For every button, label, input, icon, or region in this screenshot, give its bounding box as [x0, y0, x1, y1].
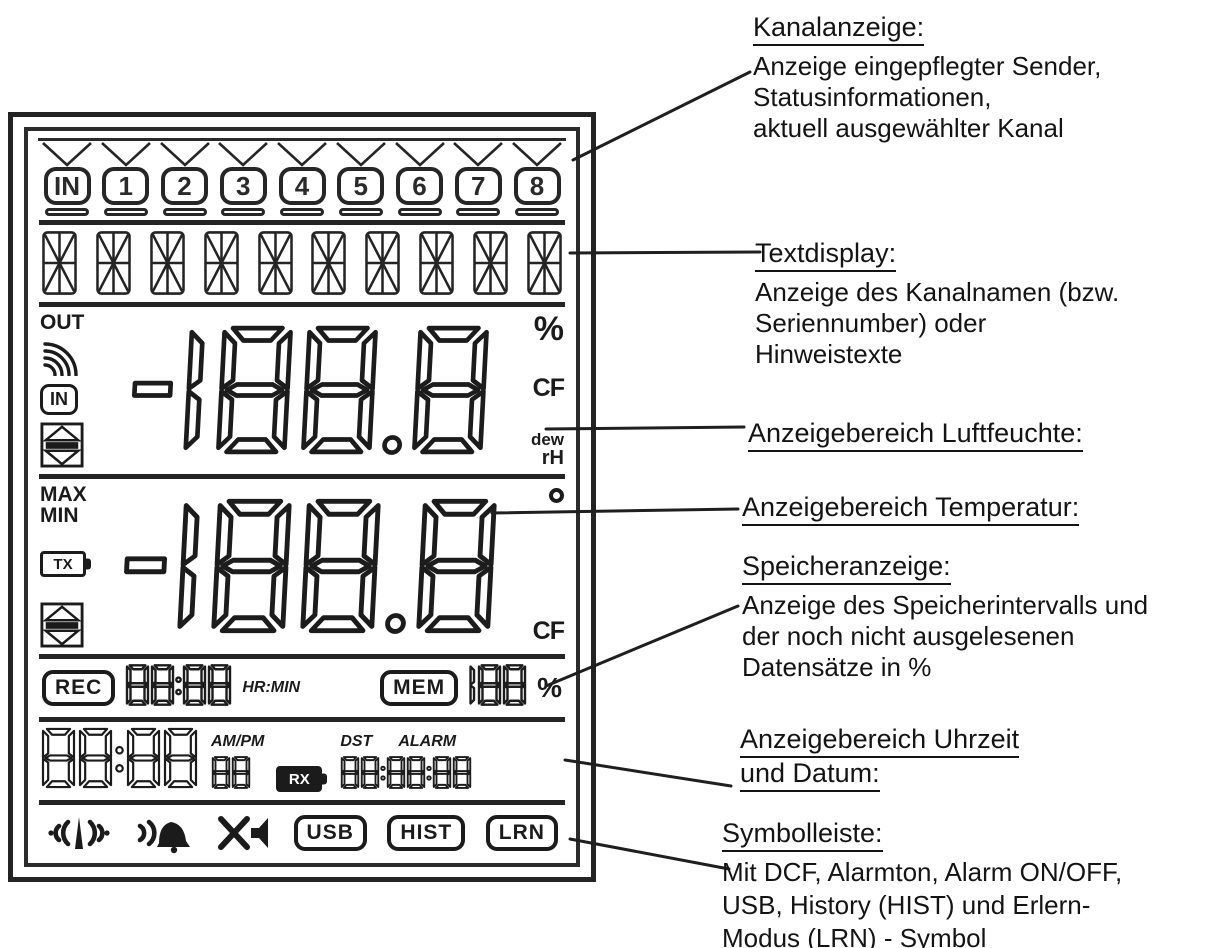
tx-battery-icon: TX [40, 551, 86, 577]
channel-box: 6 [396, 167, 443, 205]
channel-cell-IN: IN [40, 141, 94, 216]
channel-arrow-icon [158, 141, 212, 167]
fourteen-seg-char [310, 230, 347, 296]
channel-underline [45, 208, 89, 216]
channel-arrow-icon [334, 141, 388, 167]
annotation-line: Anzeige des Speicherintervalls und [742, 590, 1148, 621]
lcd-panel-frame: IN 1 2 3 4 5 [8, 112, 596, 882]
fourteen-seg-char [41, 230, 78, 296]
text-display [38, 228, 566, 298]
humidity-area: OUT IN [38, 310, 566, 470]
lcd-panel-inner: IN 1 2 3 4 5 [24, 127, 580, 867]
alarm-muted-icon [215, 812, 273, 854]
annotation-line: Anzeige eingepflegter Sender, [753, 51, 1101, 82]
seg-char [360, 756, 380, 789]
rh-label: rH [542, 448, 564, 468]
divider [39, 302, 565, 307]
leader-kanalanzeige [573, 72, 750, 160]
ampm-group: AM/PM [211, 734, 264, 794]
divider [39, 717, 565, 722]
mem-chip: MEM [380, 670, 458, 706]
channel-cell-1: 1 [99, 141, 153, 216]
temperature-area: MAX MIN TX CF [38, 482, 566, 650]
channel-underline [221, 208, 265, 216]
humidity-left-icons: OUT IN [40, 312, 112, 468]
annotation-temperatur: Anzeigebereich Temperatur: [742, 492, 1079, 531]
seg-char [231, 756, 251, 789]
channel-arrow-icon [451, 141, 505, 167]
max-label: MAX [40, 484, 87, 505]
degree-icon [549, 488, 564, 503]
lcd-display-diagram: IN 1 2 3 4 5 [0, 0, 1206, 948]
divider [39, 220, 565, 225]
divider [39, 800, 565, 805]
date-digits [340, 756, 472, 794]
clock-row: AM/PM RX DST ALARM [38, 725, 566, 796]
annotation-uhrzeit-datum: Anzeigebereich Uhrzeit und Datum: [740, 724, 1019, 792]
seg-char [411, 497, 501, 635]
annotation-speicheranzeige: Speicheranzeige: Anzeige des Speicherint… [742, 551, 1148, 683]
seg-char [502, 664, 527, 706]
temperature-right-icons: CF [508, 484, 564, 648]
annotation-line: Mit DCF, Alarmton, Alarm ON/OFF, [722, 857, 1122, 888]
fourteen-seg-char [149, 230, 186, 296]
hist-chip: HIST [387, 815, 465, 851]
seg-char [127, 324, 179, 456]
seg-char [295, 497, 385, 635]
seg-char [297, 324, 383, 456]
channel-underline [104, 208, 148, 216]
annotation-line: der noch nicht ausgelesenen [742, 621, 1148, 652]
seg-char [125, 664, 150, 706]
annotation-kanalanzeige: Kanalanzeige: Anzeige eingepflegter Send… [753, 12, 1101, 144]
seconds-digits [211, 756, 251, 794]
dew-label: dew [531, 431, 564, 448]
in-chip: IN [40, 384, 78, 415]
seg-char [211, 756, 231, 789]
temperature-digits [108, 484, 513, 648]
dcf-signal-icon [46, 813, 112, 853]
alarm-tone-icon [133, 812, 195, 854]
annotation-line: Anzeige des Kanalnamen (bzw. [755, 277, 1119, 308]
seg-char [452, 756, 472, 789]
symbol-bar: USB HIST LRN [38, 808, 566, 856]
memory-percent-digits [468, 664, 527, 711]
channel-box: 2 [161, 167, 208, 205]
seg-char [150, 664, 175, 706]
annotation-title: Kanalanzeige: [753, 12, 924, 46]
divider [39, 474, 565, 479]
annotation-title: Symbolleiste: [722, 818, 883, 852]
signal-waves-icon [40, 340, 78, 376]
seg-char [207, 664, 232, 706]
annotation-title-line2: und Datum: [740, 758, 880, 792]
fourteen-seg-char [418, 230, 455, 296]
seg-char [406, 756, 426, 789]
seg-char [114, 727, 125, 789]
cf-label: CF [533, 376, 564, 401]
channel-box: 8 [514, 167, 561, 205]
lrn-chip: LRN [486, 815, 558, 851]
cf-label: CF [533, 619, 564, 644]
channel-cell-3: 3 [216, 141, 270, 216]
channel-row: IN 1 2 3 4 5 [38, 138, 566, 216]
humidity-right-icons: % CF dew rH [508, 312, 564, 468]
seg-char [175, 664, 182, 706]
seg-char [178, 324, 213, 456]
channel-cell-4: 4 [275, 141, 329, 216]
channel-arrow-icon [40, 141, 94, 167]
channel-cell-6: 6 [393, 141, 447, 216]
rx-battery-icon: RX [276, 766, 322, 792]
seg-char [182, 664, 207, 706]
annotation-title: Anzeigebereich Uhrzeit [740, 724, 1019, 758]
annotation-line: USB, History (HIST) und Erlern- [722, 888, 1122, 922]
channel-cell-5: 5 [334, 141, 388, 216]
annotation-line: Statusinformationen, [753, 82, 1101, 113]
channel-underline [280, 208, 324, 216]
out-label: OUT [40, 312, 84, 333]
seg-char [118, 497, 172, 635]
channel-underline [515, 208, 559, 216]
channel-cell-7: 7 [451, 141, 505, 216]
channel-box: 5 [337, 167, 384, 205]
seg-char [408, 324, 494, 456]
seg-char [384, 497, 412, 635]
seg-char [162, 727, 199, 789]
annotation-line: Hinweistexte [755, 339, 1119, 370]
humidity-digits [108, 312, 512, 468]
temperature-left-icons: MAX MIN TX [40, 484, 112, 648]
channel-cell-8: 8 [510, 141, 564, 216]
seg-char [468, 664, 477, 706]
fourteen-seg-char [95, 230, 132, 296]
channel-underline [398, 208, 442, 216]
seg-char [125, 727, 162, 789]
channel-cell-2: 2 [158, 141, 212, 216]
rec-chip: REC [42, 670, 115, 706]
fourteen-seg-char [257, 230, 294, 296]
channel-arrow-icon [510, 141, 564, 167]
channel-arrow-icon [216, 141, 270, 167]
annotation-line: Modus (LRN) - Symbol [722, 922, 1122, 948]
fourteen-seg-char [203, 230, 240, 296]
channel-box: IN [44, 167, 91, 205]
annotation-title: Anzeigebereich Luftfeuchte: [748, 418, 1083, 452]
fourteen-seg-char [364, 230, 401, 296]
annotation-line: aktuell ausgewählter Kanal [753, 113, 1101, 144]
seg-char [212, 324, 298, 456]
channel-box: 7 [455, 167, 502, 205]
channel-box: 3 [220, 167, 267, 205]
channel-underline [456, 208, 500, 216]
seg-char [386, 756, 406, 789]
channel-arrow-icon [393, 141, 447, 167]
trend-arrows-icon [40, 422, 84, 468]
channel-arrow-icon [275, 141, 329, 167]
alarm-label: ALARM [398, 734, 456, 750]
time-digits [40, 727, 199, 794]
hrmin-label: HR:MIN [242, 680, 300, 696]
annotation-title: Speicheranzeige: [742, 551, 951, 585]
seg-char [382, 324, 409, 456]
divider [39, 654, 565, 659]
min-label: MIN [40, 505, 87, 526]
channel-box: 1 [102, 167, 149, 205]
channel-underline [163, 208, 207, 216]
channel-arrow-icon [99, 141, 153, 167]
trend-arrows-icon [40, 602, 84, 648]
ampm-label: AM/PM [211, 734, 264, 750]
seg-char [77, 727, 114, 789]
fourteen-seg-char [472, 230, 509, 296]
seg-char [206, 497, 296, 635]
annotation-line: Datensätze in % [742, 652, 1148, 683]
percent-label: % [537, 674, 562, 702]
annotation-textdisplay: Textdisplay: Anzeige des Kanalnamen (bzw… [755, 238, 1119, 370]
fourteen-seg-char [526, 230, 563, 296]
annotation-title: Textdisplay: [755, 238, 896, 272]
annotation-luftfeuchte: Anzeigebereich Luftfeuchte: [748, 418, 1083, 457]
channel-underline [339, 208, 383, 216]
dst-label: DST [340, 734, 372, 750]
percent-label: % [534, 312, 564, 346]
leader-textdisplay [570, 252, 760, 253]
seg-char [40, 727, 77, 789]
usb-chip: USB [294, 815, 367, 851]
annotation-line: Seriennumber) oder [755, 308, 1119, 339]
memory-row: REC HR:MIN MEM % [38, 662, 566, 713]
seg-char [432, 756, 452, 789]
seg-char [477, 664, 502, 706]
annotation-title: Anzeigebereich Temperatur: [742, 492, 1079, 526]
seg-char [171, 497, 207, 635]
annotation-symbolleiste: Symbolleiste: Mit DCF, Alarmton, Alarm O… [722, 818, 1122, 948]
seg-char [340, 756, 360, 789]
memory-interval-digits [125, 664, 232, 711]
date-group: DST ALARM [340, 734, 472, 794]
channel-box: 4 [279, 167, 326, 205]
